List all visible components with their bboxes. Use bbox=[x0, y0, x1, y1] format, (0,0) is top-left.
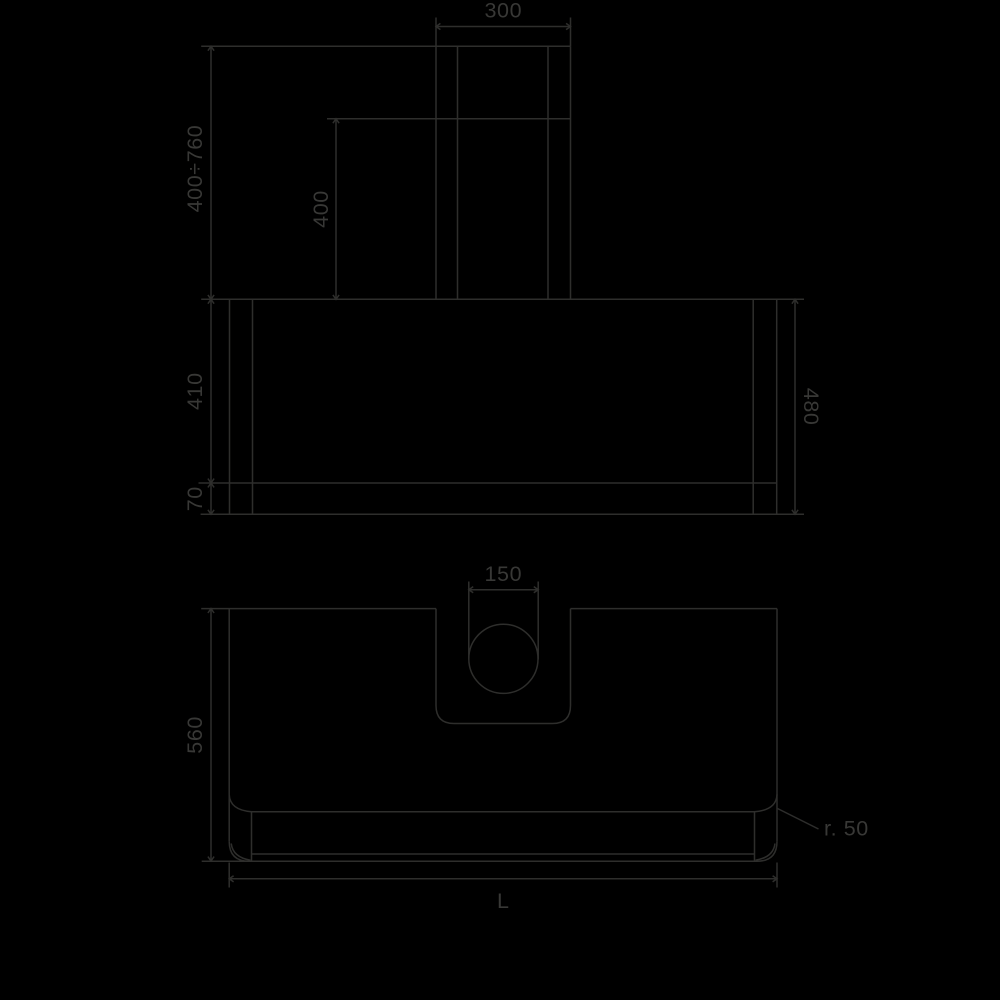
svg-text:70: 70 bbox=[183, 486, 207, 511]
svg-text:560: 560 bbox=[183, 716, 207, 754]
svg-text:150: 150 bbox=[484, 562, 522, 586]
svg-text:480: 480 bbox=[799, 388, 823, 426]
svg-text:L: L bbox=[497, 889, 510, 913]
svg-text:r. 50: r. 50 bbox=[824, 817, 869, 841]
svg-text:410: 410 bbox=[183, 372, 207, 410]
svg-text:400: 400 bbox=[309, 190, 333, 228]
svg-text:300: 300 bbox=[484, 0, 522, 22]
svg-text:400÷760: 400÷760 bbox=[183, 125, 207, 213]
